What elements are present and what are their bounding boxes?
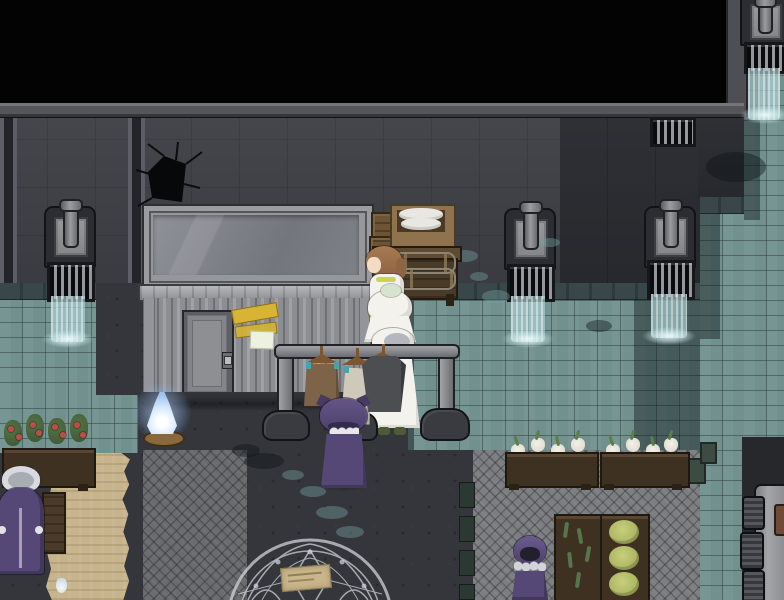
npc-shopper-purple[interactable] bbox=[508, 534, 552, 600]
puddle-stain bbox=[706, 152, 766, 182]
shop-sign-frame bbox=[142, 204, 374, 290]
glass-sheen bbox=[153, 215, 359, 275]
puddle-stain bbox=[282, 470, 304, 480]
garment-clip bbox=[334, 362, 339, 369]
tomato-plant bbox=[26, 414, 44, 442]
machine-flange bbox=[740, 532, 764, 570]
puddle-stain bbox=[586, 320, 612, 332]
market-edge-block bbox=[459, 584, 475, 600]
planter-turnips-2[interactable] bbox=[600, 434, 688, 490]
herb-sprig bbox=[563, 522, 569, 538]
shelf-leg bbox=[446, 294, 454, 306]
planter-cabbages[interactable] bbox=[600, 514, 650, 600]
wall-seam bbox=[0, 117, 18, 283]
wall-top-beam bbox=[0, 103, 744, 118]
planter-leg bbox=[78, 484, 88, 491]
market-edge-block bbox=[459, 550, 475, 576]
planter-turnips-1[interactable] bbox=[505, 434, 597, 490]
market-edge-block bbox=[459, 516, 475, 542]
planter-leg bbox=[509, 484, 519, 490]
stone-edge-right bbox=[698, 195, 744, 214]
herb-sprig bbox=[577, 528, 584, 544]
drain-left bbox=[44, 206, 96, 268]
planter-leg bbox=[604, 484, 614, 490]
planter-leg bbox=[581, 484, 591, 490]
turnip bbox=[664, 438, 678, 452]
shop-sign-glass bbox=[153, 215, 359, 275]
flask-glass bbox=[147, 392, 177, 434]
tomato bbox=[8, 426, 14, 432]
tomato bbox=[74, 422, 80, 428]
puddle-stain bbox=[244, 453, 284, 469]
drain-right bbox=[644, 206, 696, 268]
herb-sprig bbox=[585, 546, 592, 562]
face bbox=[367, 257, 381, 273]
turnip bbox=[531, 438, 545, 452]
channel-shadow-3 bbox=[700, 209, 720, 339]
puddle-stain bbox=[470, 272, 488, 281]
turnip bbox=[571, 438, 585, 452]
fur-collar bbox=[514, 561, 546, 572]
cabbage bbox=[609, 546, 639, 570]
machine-flange bbox=[742, 496, 765, 530]
cabbage bbox=[609, 572, 639, 596]
planter-box bbox=[600, 452, 690, 488]
herb-sprig bbox=[575, 572, 581, 588]
npc-customer-purple[interactable] bbox=[316, 396, 372, 490]
shop-door-frame bbox=[182, 310, 234, 398]
drain-pipe-cap bbox=[59, 199, 83, 212]
robe-trim bbox=[19, 508, 22, 568]
npc-walker-purple[interactable] bbox=[0, 464, 46, 576]
drain-pipe-cap bbox=[519, 201, 543, 214]
cuff bbox=[35, 526, 43, 534]
moss-block bbox=[700, 442, 717, 464]
garment-clip bbox=[344, 366, 349, 373]
dark-void bbox=[0, 0, 728, 103]
parchment-writing bbox=[288, 578, 314, 582]
drain-pipe-cap bbox=[659, 199, 683, 212]
drain-top-right bbox=[740, 0, 784, 46]
tomato bbox=[36, 430, 42, 436]
folded-cloths bbox=[401, 218, 441, 230]
door-knob bbox=[224, 356, 232, 365]
rust-pipe bbox=[774, 504, 784, 536]
puddle-stain bbox=[482, 290, 510, 303]
turnip bbox=[626, 438, 640, 452]
planter-leg bbox=[672, 484, 682, 490]
puddle-stain bbox=[540, 238, 560, 247]
gray-hair bbox=[8, 472, 34, 489]
garment-clip bbox=[306, 362, 311, 369]
puddle-stain bbox=[316, 506, 348, 519]
tomato bbox=[52, 424, 58, 430]
cabbage bbox=[609, 520, 639, 544]
water-foam bbox=[42, 330, 94, 348]
market-edge-block bbox=[459, 482, 475, 508]
rack-foot bbox=[420, 408, 470, 441]
water-foam bbox=[740, 106, 784, 124]
machine-flange bbox=[742, 570, 765, 600]
face-opening bbox=[520, 547, 540, 561]
vent-grate bbox=[650, 117, 696, 147]
door-handle[interactable] bbox=[222, 352, 233, 369]
tomato bbox=[16, 434, 22, 440]
tomato bbox=[80, 432, 86, 438]
tomato-plant bbox=[4, 420, 22, 446]
shop-door[interactable] bbox=[187, 315, 227, 392]
tomato bbox=[60, 432, 66, 438]
robe bbox=[512, 571, 548, 600]
rack-foot bbox=[262, 410, 310, 441]
water-foam bbox=[642, 327, 696, 345]
planter-box bbox=[505, 452, 599, 488]
game-viewport bbox=[0, 0, 784, 600]
tomato bbox=[30, 422, 36, 428]
flask-lamp[interactable] bbox=[143, 390, 181, 444]
tomato-plant bbox=[70, 414, 88, 442]
water-foam bbox=[502, 330, 554, 348]
parchment-writing bbox=[288, 572, 322, 577]
drain-pipe-cap bbox=[754, 0, 777, 8]
tomato-plant bbox=[48, 418, 66, 444]
herb-sprig bbox=[567, 552, 573, 568]
small-flask bbox=[56, 578, 67, 593]
parchment-note[interactable] bbox=[280, 564, 332, 592]
robe bbox=[321, 434, 367, 488]
planter-herbs[interactable] bbox=[554, 514, 602, 600]
hood-cap bbox=[381, 284, 401, 297]
